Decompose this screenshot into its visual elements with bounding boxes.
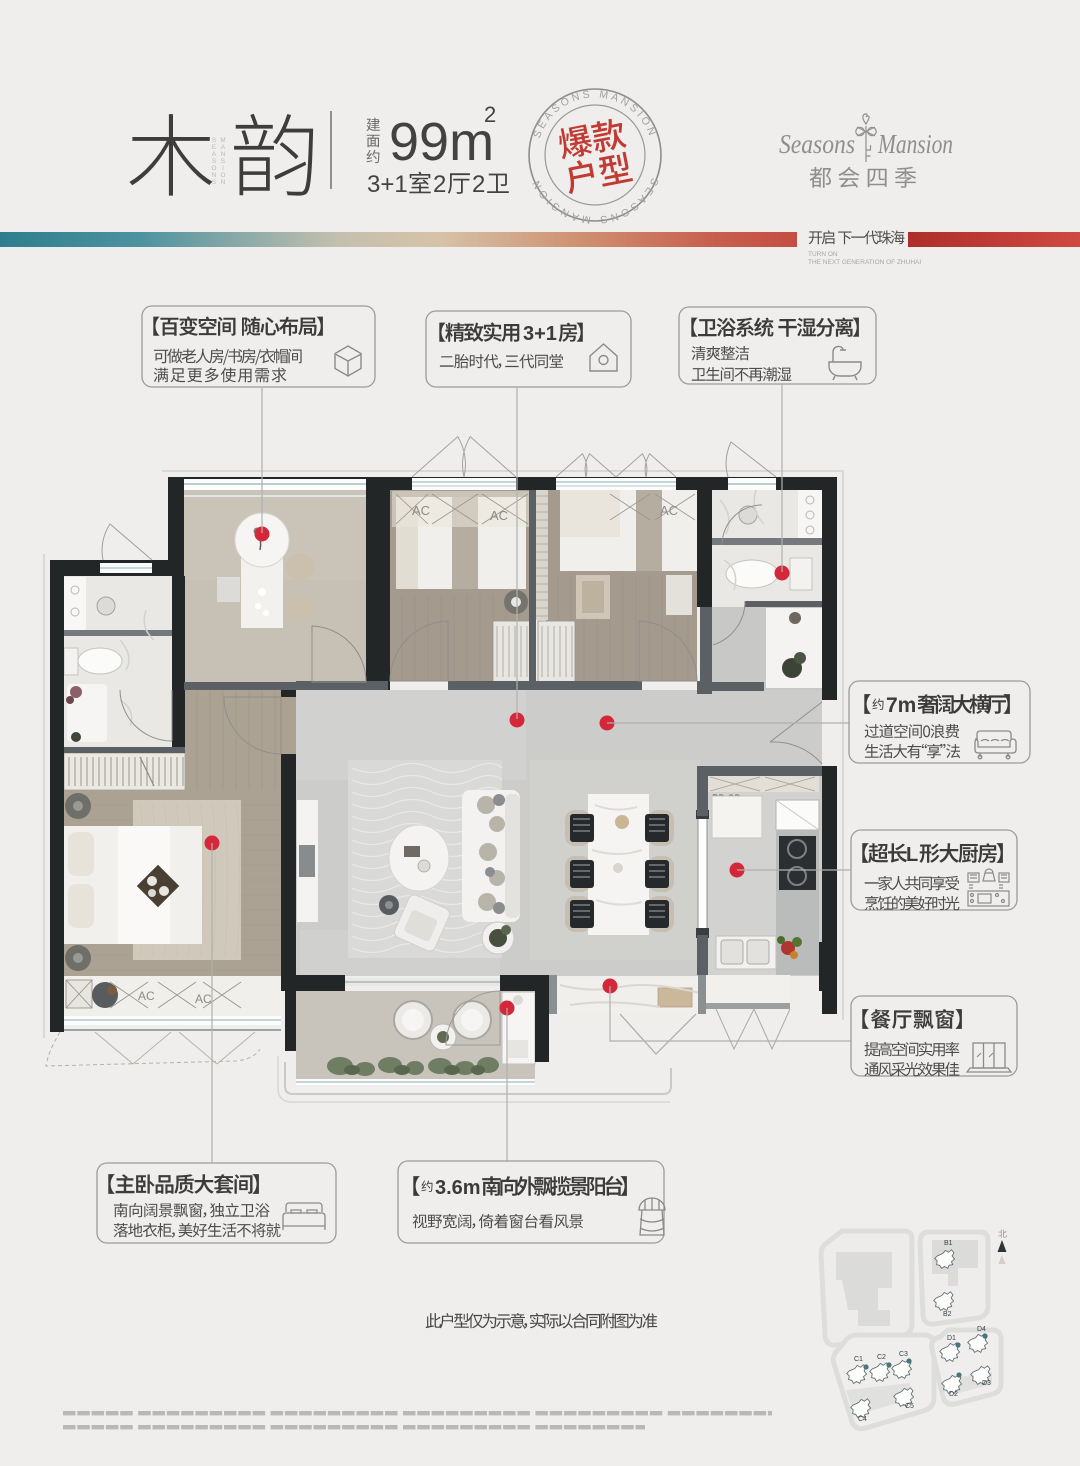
- svg-text:Seasons: Seasons: [779, 129, 855, 159]
- svg-text:C3: C3: [899, 1351, 908, 1358]
- svg-text:SEASONS: SEASONS: [211, 137, 218, 186]
- svg-text:C1: C1: [854, 1356, 863, 1363]
- svg-text:C2: C2: [877, 1354, 886, 1361]
- svg-text:C5: C5: [905, 1403, 914, 1410]
- svg-text:D2: D2: [949, 1391, 958, 1398]
- svg-text:3+1: 3+1: [367, 171, 408, 198]
- svg-text:D3: D3: [982, 1380, 991, 1387]
- svg-text:AC: AC: [412, 503, 430, 518]
- svg-text:Mansion: Mansion: [877, 129, 953, 159]
- svg-text:2: 2: [472, 171, 485, 198]
- svg-text:7m: 7m: [886, 694, 916, 717]
- svg-text:D1: D1: [947, 1335, 956, 1342]
- svg-text:3.6m: 3.6m: [435, 1177, 481, 1199]
- svg-text:MANSION: MANSION: [220, 137, 227, 186]
- svg-text:B2: B2: [943, 1311, 952, 1318]
- svg-text:D4: D4: [977, 1326, 986, 1333]
- svg-text:3+1: 3+1: [523, 323, 557, 345]
- svg-text:2: 2: [484, 102, 496, 127]
- svg-text:AC: AC: [138, 989, 155, 1003]
- svg-text:L: L: [906, 844, 918, 866]
- svg-text:TURN ON: TURN ON: [808, 251, 838, 258]
- svg-text:99m: 99m: [389, 112, 494, 172]
- svg-text:B1: B1: [944, 1240, 953, 1247]
- svg-text:AC: AC: [195, 992, 212, 1006]
- svg-text:C4: C4: [858, 1416, 867, 1423]
- svg-text:2: 2: [433, 171, 446, 198]
- svg-text:AC: AC: [490, 508, 508, 523]
- svg-text:THE NEXT GENERATION OF ZHUHAI: THE NEXT GENERATION OF ZHUHAI: [808, 259, 921, 266]
